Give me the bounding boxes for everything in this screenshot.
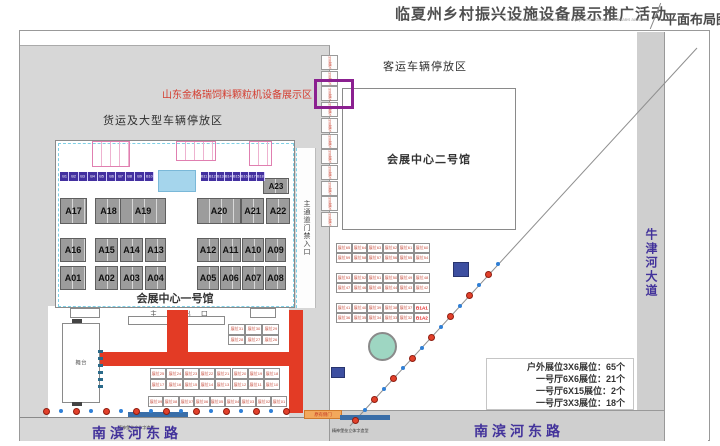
callout-highlight-box [314,79,354,109]
outdoor-strip-booth: 3X6展位 [321,118,338,133]
plaza-booth-cell: 展位30 [245,324,262,335]
east-booth-cell: 展位46 [352,283,368,293]
east-booth-cell: 展位44 [383,283,399,293]
east-booth-cell: 展位60 [414,243,430,253]
east-booth-cell: 展位45 [367,283,383,293]
plaza-booth-cell: 展位21 [215,368,231,379]
blue-marker-dot [179,409,183,413]
plaza-booth-cell: 展位14 [199,379,215,390]
east-booth-cell: 展位63 [367,243,383,253]
red-marker-dot [73,408,80,415]
stats-box: 户外展位3X6展位：65个 一号厅6X6展位：21个 一号厅6X15展位：2个 … [486,358,634,410]
east-booth-cell: 展位36 [336,313,352,323]
road-south-left-label: 南滨河东路 [92,423,182,443]
east-booth-cell: 展位33 [383,313,399,323]
red-marker-dot [253,408,260,415]
plaza-booth-cell: 展位28 [228,335,245,346]
east-booth-cell: 展位53 [336,273,352,283]
plaza-booth-cell: 展位09 [148,396,163,407]
stats-line-1: 户外展位3X6展位：65个 [487,361,625,373]
east-booth-cell: 展位47 [336,283,352,293]
plaza-booth-cell: 展位06 [194,396,209,407]
east-booth-cell: 展位35 [352,313,368,323]
blue-marker-dot [239,409,243,413]
east-booth-cell: 展位38 [383,303,399,313]
blue-marker-dot [59,409,63,413]
east-booth-cell: 展位32 [398,313,414,323]
outdoor-strip-booth: 3X6展位 [321,181,338,196]
east-booth-cell: 展位43 [398,283,414,293]
stats-line-2: 一号厅6X6展位：21个 [487,373,625,385]
plaza-booth-cell: 展位22 [199,368,215,379]
plaza-booth-cell: 展位31 [228,324,245,335]
east-booth-cell: 展位51 [367,273,383,283]
old-side-gate: 原有侧门 [304,410,342,419]
plaza-booth-cell: 展位24 [166,368,182,379]
plaza-booth-cell: 展位12 [232,379,248,390]
plaza-booth-cell: 展位26 [262,335,279,346]
outdoor-strip-booth: 3X6展位 [321,149,338,164]
map-type-label: 平面布局图 [664,9,720,28]
red-marker-dot [409,355,416,362]
east-booth-cell: 展位49 [398,273,414,283]
stats-line-3: 一号厅6X15展位：2个 [487,385,625,397]
east-booth-cell: 展位39 [367,303,383,313]
east-booth-cell: 展位65 [336,243,352,253]
plaza-booth-cell: 展位16 [166,379,182,390]
east-booth-cell: 展位64 [352,243,368,253]
blue-marker-dot [89,409,93,413]
outdoor-strip-booth: 3X6展位 [321,212,338,227]
plaza-booth-cell: 展位29 [262,324,279,335]
spirit-sign-right-label: 精神堡垒立体字造型 [332,428,369,434]
blue-marker-dot [363,408,367,412]
outdoor-strip-booth: 3X6展位 [321,55,338,70]
east-booth-cell: B1A1 [414,303,430,313]
plaza-booth-cell: 展位10 [264,379,280,390]
east-booth-cell: 展位37 [398,303,414,313]
plaza-booth-cell: 展位03 [240,396,255,407]
floor-plan-canvas: 临夏州乡村振兴设施设备展示推广活动 Linxia rural revitaliz… [0,0,720,446]
red-marker-dot [428,334,435,341]
plaza-booth-cell: 展位01 [271,396,286,407]
red-marker-dot [352,417,359,424]
plaza-booth-cell: 展位25 [150,368,166,379]
east-booth-cell: 展位57 [367,253,383,263]
spirit-sign-bar-right [340,415,390,420]
outdoor-strip-booth: 3X6展位 [321,165,338,180]
east-booth-cell: 展位56 [383,253,399,263]
red-marker-dot [283,408,290,415]
blue-marker-dot [269,409,273,413]
red-marker-dot [43,408,50,415]
plaza-booth-cell: 展位19 [248,368,264,379]
stats-line-4: 一号厅3X3展位：18个 [487,397,625,409]
east-booth-cell: 展位50 [383,273,399,283]
east-booth-cell: 展位58 [352,253,368,263]
blue-marker-dot [382,387,386,391]
plaza-booth-cell: 展位11 [248,379,264,390]
east-booth-cell: B1A2 [414,313,430,323]
plaza-booth-cell: 展位17 [150,379,166,390]
blue-marker-dot [149,409,153,413]
old-side-gate-label: 原有侧门 [314,411,331,417]
plaza-booth-cell: 展位02 [256,396,271,407]
plaza-booth-cell: 展位13 [215,379,231,390]
blue-marker-dot [420,346,424,350]
east-booth-cell: 展位42 [414,283,430,293]
outdoor-strip-booth: 3X6展位 [321,196,338,211]
plaza-booth-cell: 展位27 [245,335,262,346]
road-south-right-label: 南滨河东路 [474,421,564,441]
plaza-booth-cell: 展位15 [183,379,199,390]
east-booth-cell: 展位59 [336,253,352,263]
plaza-booth-cell: 展位04 [225,396,240,407]
road-east-label: 牛津河大道 [643,228,660,298]
east-booth-cell: 展位41 [336,303,352,313]
east-booth-cell: 展位61 [398,243,414,253]
plaza-booth-cell: 展位18 [264,368,280,379]
blue-marker-dot [439,325,443,329]
east-booth-cell: 展位40 [352,303,368,313]
red-marker-dot [163,408,170,415]
red-marker-dot [193,408,200,415]
plaza-booth-cell: 展位08 [163,396,178,407]
east-booth-cell: 展位54 [414,253,430,263]
red-marker-dot [447,313,454,320]
page-subtitle-en: Linxia rural revitalization technical eq… [466,18,648,22]
blue-marker-dot [119,409,123,413]
east-booth-cell: 展位48 [414,273,430,283]
plaza-booth-cell: 展位23 [183,368,199,379]
plaza-booth-cell: 展位07 [179,396,194,407]
east-booth-cell: 展位62 [383,243,399,253]
red-marker-dot [223,408,230,415]
red-marker-dot [133,408,140,415]
east-booth-cell: 展位34 [367,313,383,323]
plaza-booth-cell: 展位20 [232,368,248,379]
red-marker-dot [103,408,110,415]
plaza-booth-cell: 展位05 [210,396,225,407]
outdoor-strip-booth: 3X6展位 [321,134,338,149]
east-booth-cell: 展位52 [352,273,368,283]
east-booth-cell: 展位55 [398,253,414,263]
red-marker-dot [371,396,378,403]
blue-marker-dot [209,409,213,413]
